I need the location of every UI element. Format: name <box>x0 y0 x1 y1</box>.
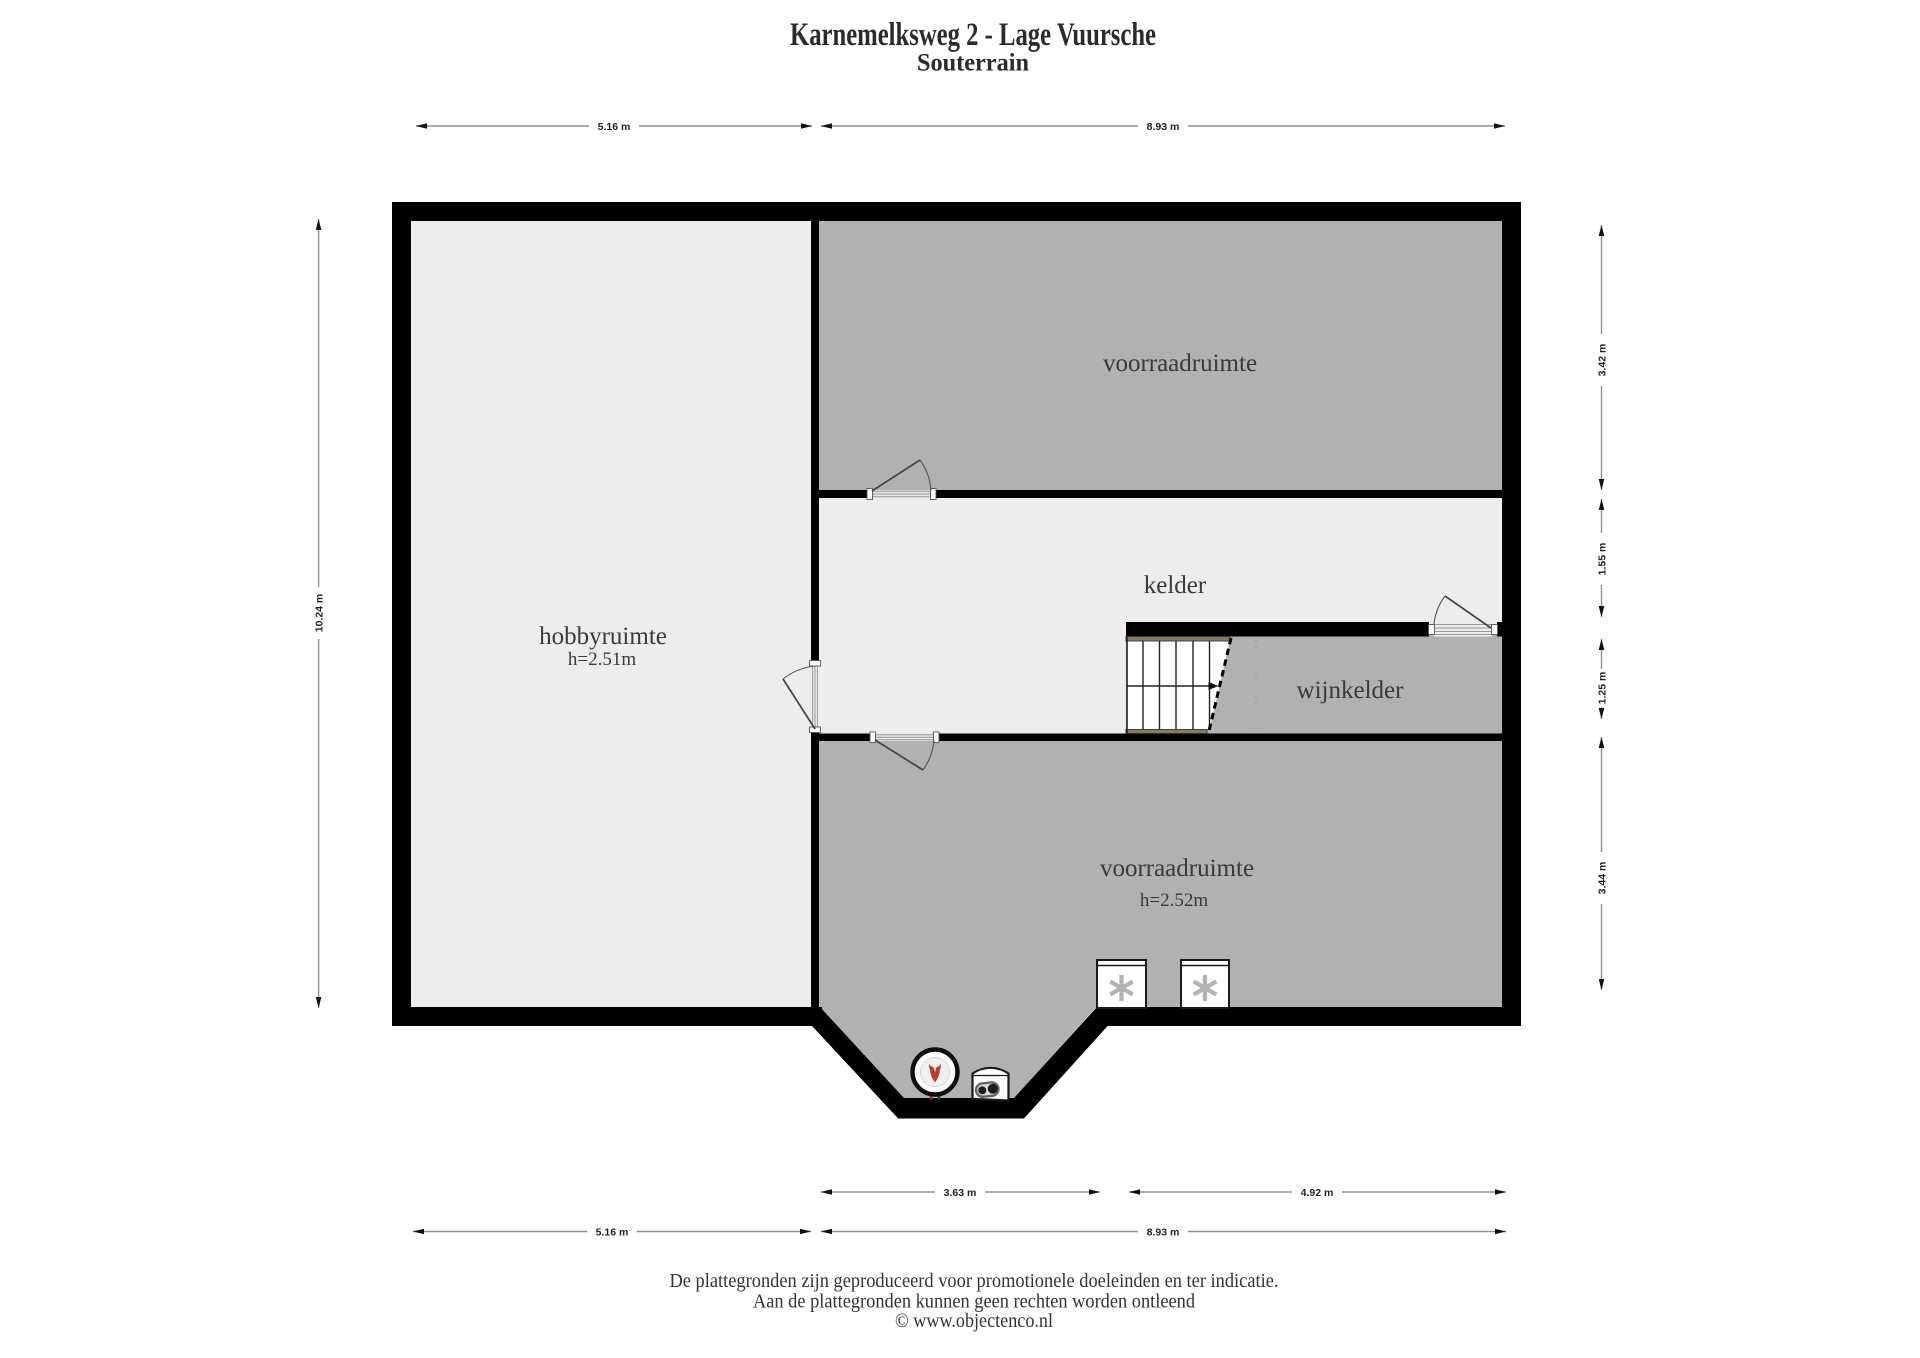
svg-text:1.25 m: 1.25 m <box>1597 672 1609 705</box>
svg-text:De plattegronden zijn geproduc: De plattegronden zijn geproduceerd voor … <box>670 1270 1279 1292</box>
svg-text:4.92 m: 4.92 m <box>1301 1187 1334 1199</box>
svg-text:© www.objectenco.nl: © www.objectenco.nl <box>895 1310 1053 1332</box>
svg-text:1.55 m: 1.55 m <box>1597 543 1609 576</box>
svg-text:8.93 m: 8.93 m <box>1147 121 1180 133</box>
svg-text:3.44 m: 3.44 m <box>1597 862 1609 895</box>
svg-text:hobbyruimte: hobbyruimte <box>539 623 667 650</box>
svg-text:h=2.51m: h=2.51m <box>568 649 636 670</box>
svg-text:wijnkelder: wijnkelder <box>1297 677 1405 704</box>
svg-text:8.93 m: 8.93 m <box>1147 1227 1180 1239</box>
svg-text:5.16 m: 5.16 m <box>596 1227 629 1239</box>
svg-text:Souterrain: Souterrain <box>917 50 1029 77</box>
svg-text:3.63 m: 3.63 m <box>944 1187 977 1199</box>
svg-text:kelder: kelder <box>1144 572 1207 599</box>
svg-text:Karnemelksweg 2 - Lage Vuursch: Karnemelksweg 2 - Lage Vuursche <box>790 17 1156 53</box>
svg-text:voorraadruimte: voorraadruimte <box>1103 350 1257 377</box>
svg-text:10.24 m: 10.24 m <box>314 594 326 633</box>
svg-text:h=2.52m: h=2.52m <box>1140 890 1208 911</box>
svg-text:5.16 m: 5.16 m <box>598 121 631 133</box>
svg-text:3.42 m: 3.42 m <box>1597 344 1609 377</box>
svg-text:voorraadruimte: voorraadruimte <box>1100 855 1254 882</box>
